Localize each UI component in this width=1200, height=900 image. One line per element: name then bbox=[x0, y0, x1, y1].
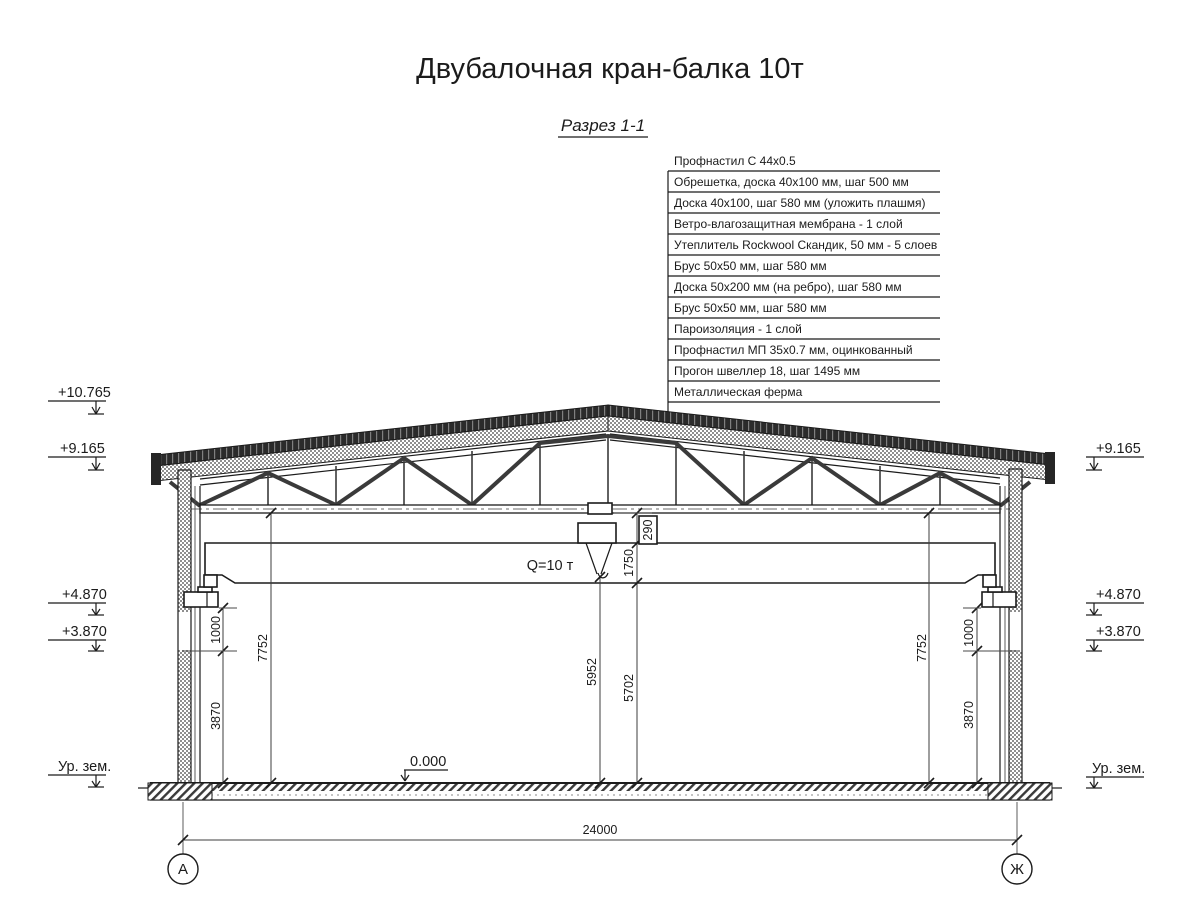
axis-label-right: Ж bbox=[1010, 861, 1024, 878]
right-footing bbox=[988, 783, 1052, 800]
elevation-mark-right-3870: +3.870 bbox=[1086, 624, 1144, 651]
right-runway-beam bbox=[982, 592, 1016, 607]
callout-row: Пароизоляция - 1 слой bbox=[674, 322, 802, 336]
chord-splice-plate bbox=[588, 503, 612, 514]
dim-truss-to-girder: 290 bbox=[641, 520, 655, 541]
view-label: Разрез 1-1 bbox=[558, 116, 648, 137]
elevation-arrow-icon bbox=[1086, 457, 1102, 470]
elevation-value: +3.870 bbox=[62, 624, 107, 640]
callout-row: Профнастил МП 35х0.7 мм, оцинкованный bbox=[674, 343, 913, 357]
elevation-arrow-icon bbox=[1086, 777, 1102, 788]
elevation-mark-left-9165: +9.165 bbox=[48, 441, 106, 470]
elevation-arrow-icon bbox=[88, 401, 104, 414]
left-footing bbox=[148, 783, 212, 800]
elevation-mark-floor: 0.000 bbox=[401, 754, 448, 781]
dim-span: 24000 bbox=[583, 823, 618, 837]
page-title: Двубалочная кран-балка 10т bbox=[416, 53, 804, 85]
elevation-arrow-icon bbox=[88, 775, 104, 787]
right-wall bbox=[1000, 469, 1022, 783]
elevation-arrow-icon bbox=[88, 640, 104, 651]
callout-row: Брус 50х50 мм, шаг 580 мм bbox=[674, 301, 827, 315]
left-end-truck bbox=[204, 575, 217, 587]
dim-right-under-corbel: 3870 bbox=[962, 701, 976, 729]
floor-slab bbox=[138, 783, 1062, 800]
crane-capacity-label: Q=10 т bbox=[527, 558, 574, 574]
elevation-value: +4.870 bbox=[62, 587, 107, 603]
roof-layers-callout: Профнастил С 44х0.5 Обрешетка, доска 40х… bbox=[668, 154, 940, 432]
elevation-mark-left-10765: +10.765 bbox=[48, 385, 111, 414]
dim-left-clearance: 7752 bbox=[256, 634, 270, 662]
elevation-arrow-icon bbox=[1086, 603, 1102, 615]
elevation-value: +9.165 bbox=[1096, 441, 1141, 457]
elevation-mark-left-3870: +3.870 bbox=[48, 624, 107, 651]
callout-row: Доска 40х100, шаг 580 мм (уложить плашмя… bbox=[674, 196, 925, 210]
axis-bubble-left: А bbox=[168, 854, 198, 884]
dim-right-corbel: 1000 bbox=[962, 619, 976, 647]
elevation-mark-right-4870: +4.870 bbox=[1086, 587, 1144, 615]
elevation-arrow-icon bbox=[88, 457, 104, 470]
callout-row: Металлическая ферма bbox=[674, 385, 803, 399]
hoist-trolley bbox=[578, 523, 616, 543]
dim-right-clearance: 7752 bbox=[915, 634, 929, 662]
elevation-arrow-icon bbox=[1086, 640, 1102, 651]
roof bbox=[151, 405, 1055, 485]
dim-girder-bottom-to-floor: 5702 bbox=[622, 674, 636, 702]
dim-left-under-corbel: 3870 bbox=[209, 702, 223, 730]
right-eave-fascia bbox=[1045, 452, 1055, 484]
elevation-value: +10.765 bbox=[58, 385, 111, 401]
dim-left-corbel: 1000 bbox=[209, 616, 223, 644]
dim-girder-to-hook: 1750 bbox=[622, 549, 636, 577]
elevation-value: +3.870 bbox=[1096, 624, 1141, 640]
left-runway-beam bbox=[184, 592, 218, 607]
elevation-arrow-icon bbox=[88, 603, 104, 615]
callout-row: Брус 50х50 мм, шаг 580 мм bbox=[674, 259, 827, 273]
callout-row: Прогон швеллер 18, шаг 1495 мм bbox=[674, 364, 860, 378]
axis-bubble-right: Ж bbox=[1002, 854, 1032, 884]
elevation-mark-right-9165: +9.165 bbox=[1086, 441, 1144, 470]
dim-hook-to-floor: 5952 bbox=[585, 658, 599, 686]
elevation-value: Ур. зем. bbox=[58, 759, 111, 775]
elevation-value: Ур. зем. bbox=[1092, 761, 1145, 777]
callout-row: Доска 50х200 мм (на ребро), шаг 580 мм bbox=[674, 280, 902, 294]
span-dimension: 24000 bbox=[178, 802, 1022, 854]
drawing-sheet: Двубалочная кран-балка 10т Разрез 1-1 Пр… bbox=[0, 0, 1200, 900]
elevation-mark-left-4870: +4.870 bbox=[48, 587, 107, 615]
left-eave-fascia bbox=[151, 453, 161, 485]
elevation-mark-left-ground: Ур. зем. bbox=[48, 759, 111, 787]
section-drawing: Двубалочная кран-балка 10т Разрез 1-1 Пр… bbox=[0, 0, 1200, 900]
axis-label-left: А bbox=[178, 861, 188, 878]
left-wall bbox=[178, 470, 200, 783]
callout-row: Обрешетка, доска 40х100 мм, шаг 500 мм bbox=[674, 175, 909, 189]
elevation-value: +4.870 bbox=[1096, 587, 1141, 603]
callout-row: Ветро-влагозащитная мембрана - 1 слой bbox=[674, 217, 903, 231]
elevation-arrow-icon bbox=[401, 770, 409, 781]
callout-row: Утеплитель Rockwool Скандик, 50 мм - 5 с… bbox=[674, 238, 937, 252]
view-label-text: Разрез 1-1 bbox=[561, 116, 645, 135]
elevation-value: 0.000 bbox=[410, 754, 446, 770]
elevation-mark-right-ground: Ур. зем. bbox=[1086, 761, 1145, 788]
callout-row: Профнастил С 44х0.5 bbox=[674, 154, 796, 168]
elevation-value: +9.165 bbox=[60, 441, 105, 457]
right-end-truck bbox=[983, 575, 996, 587]
